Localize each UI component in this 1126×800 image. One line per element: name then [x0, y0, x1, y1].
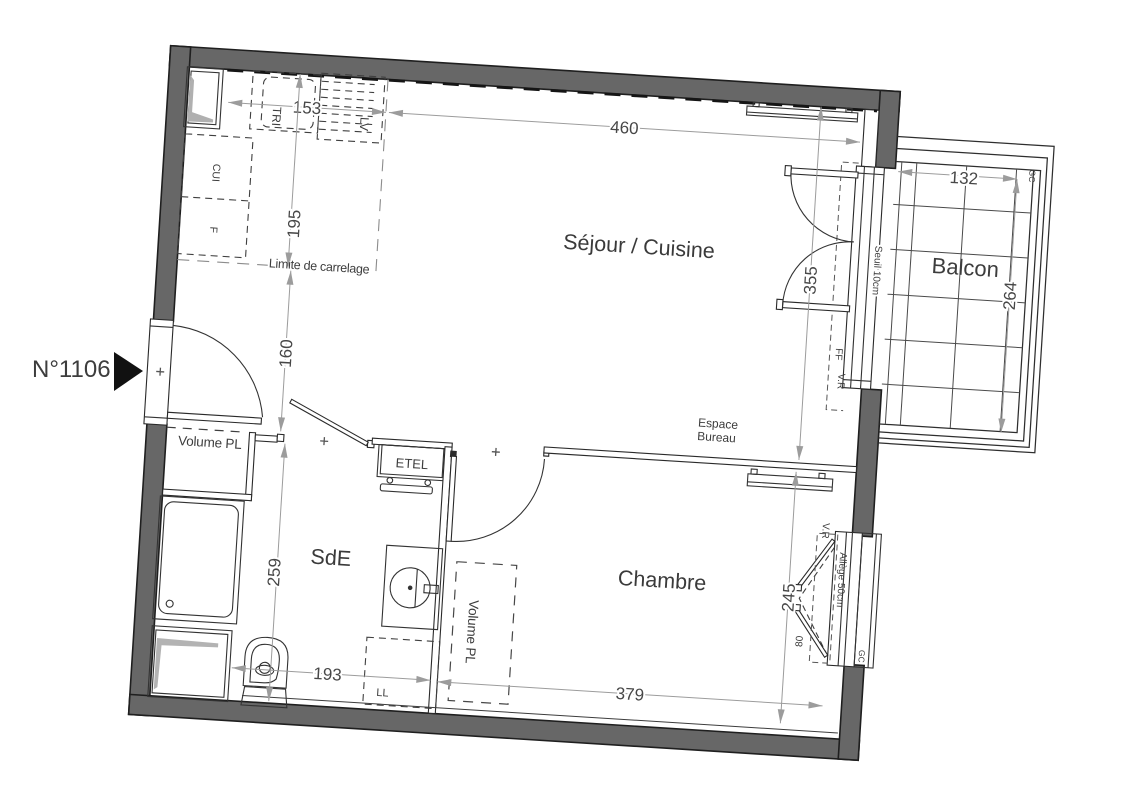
svg-text:259: 259 — [264, 557, 285, 587]
svg-text:Balcon: Balcon — [931, 253, 1000, 282]
svg-text:GC: GC — [1027, 169, 1038, 182]
svg-text:132: 132 — [949, 168, 979, 189]
svg-text:193: 193 — [313, 664, 343, 685]
svg-text:ETEL: ETEL — [395, 455, 428, 472]
svg-text:CUI: CUI — [209, 163, 222, 182]
svg-text:V.R: V.R — [819, 523, 831, 539]
svg-text:GC: GC — [856, 650, 867, 663]
svg-text:460: 460 — [610, 117, 640, 138]
svg-text:F: F — [207, 226, 219, 233]
svg-text:264: 264 — [1000, 281, 1021, 311]
svg-text:355: 355 — [800, 266, 821, 296]
svg-text:SdE: SdE — [310, 545, 352, 572]
svg-text:379: 379 — [615, 684, 645, 705]
svg-text:LV: LV — [357, 117, 372, 132]
svg-text:V.R: V.R — [834, 373, 846, 389]
svg-text:N°1106: N°1106 — [32, 356, 111, 383]
svg-text:160: 160 — [276, 339, 297, 369]
svg-text:LL: LL — [376, 687, 389, 700]
svg-text:245: 245 — [778, 583, 799, 613]
svg-text:195: 195 — [284, 209, 305, 239]
svg-text:Bureau: Bureau — [697, 429, 737, 445]
svg-text:153: 153 — [292, 98, 322, 119]
svg-text:FF: FF — [832, 348, 844, 361]
svg-text:TRI: TRI — [269, 106, 284, 126]
svg-text:80: 80 — [794, 635, 806, 647]
